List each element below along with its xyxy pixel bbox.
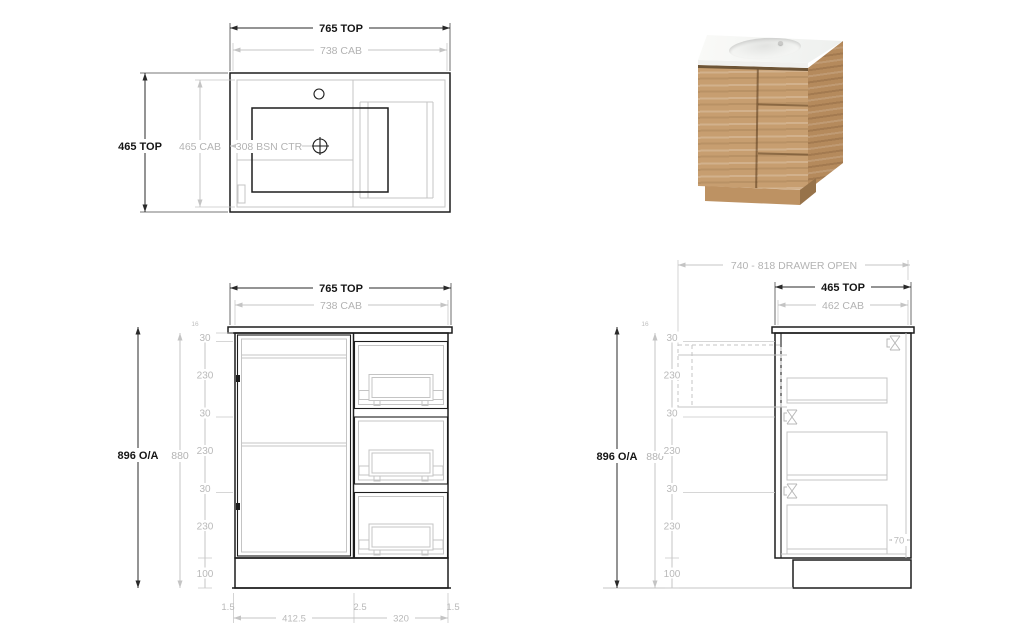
dim-front-height-overall: 896 O/A [116,327,161,588]
svg-text:30: 30 [199,409,211,420]
dim-label: 738 CAB [320,45,362,57]
svg-text:30: 30 [666,333,678,344]
svg-text:320: 320 [393,614,409,625]
open-drawer-outline [678,345,781,407]
svg-text:30: 30 [199,484,211,495]
svg-text:1.5: 1.5 [446,602,459,613]
dim-plan-width-cab: 738 CAB [233,43,447,71]
render-door-gap [755,68,759,189]
svg-text:230: 230 [197,522,214,533]
dim-label: 765 TOP [319,283,363,295]
dim-top-thickness: 16 [641,321,649,328]
kickboard [793,560,911,588]
side-elevation-view: 740 - 818 DRAWER OPEN 465 TOP 462 CAB [595,255,945,643]
svg-text:230: 230 [197,446,214,457]
dim-side-depth-cab: 462 CAB [778,298,908,325]
svg-text:1.5: 1.5 [221,602,234,613]
svg-text:230: 230 [664,522,681,533]
benchtop [772,327,914,333]
dim-back-gap: 70 [889,534,910,547]
dim-basin-centre: 308 BSN CTR [230,140,312,153]
dim-front-width-chain: 1.5 412.5 2.5 320 1.5 [221,593,459,625]
drawer-profile [787,505,887,554]
dim-side-height-chain: 30 230 30 230 30 230 100 [660,332,775,589]
dim-label: 740 - 818 DRAWER OPEN [731,260,857,272]
svg-text:100: 100 [197,569,214,580]
drawer-front [355,417,448,484]
dim-label: 465 TOP [118,141,162,153]
dim-plan-depth-cab: 465 CAB [175,80,235,207]
drawer-profile [787,432,887,480]
render-drawer-gap [758,152,808,155]
svg-text:230: 230 [664,446,681,457]
dim-label: 70 [894,536,905,547]
dim-front-width-cab: 738 CAB [235,298,448,325]
dim-label: 465 TOP [821,282,865,294]
dim-side-height-overall: 896 O/A [595,327,640,588]
drawing-sheet: 765 TOP 738 CAB 465 TOP 465 CAB [0,0,1013,643]
dim-label: 896 O/A [118,450,159,462]
dim-label: 308 BSN CTR [236,141,303,153]
hinge [236,503,240,510]
render-basin [728,36,801,62]
svg-text:2.5: 2.5 [353,602,366,613]
dim-label: 880 [171,450,189,462]
dim-front-height-chain: 30 230 30 230 30 230 100 [193,332,233,589]
drawer-profile [787,378,887,403]
product-render [685,20,880,225]
dim-label: 465 CAB [179,141,221,153]
front-geometry [228,327,452,588]
svg-text:30: 30 [666,409,678,420]
svg-text:230: 230 [197,371,214,382]
drawer-front [355,493,448,559]
runner-clip [887,336,900,350]
runner-clip [784,410,797,424]
svg-text:100: 100 [664,569,681,580]
benchtop [228,327,452,333]
dim-label: 738 CAB [320,300,362,312]
render-drawer-gap [758,103,808,106]
dim-front-height-cab: 880 [167,333,193,588]
svg-text:412.5: 412.5 [282,614,306,625]
dim-label: 765 TOP [319,23,363,35]
drawer-front [355,342,448,409]
dim-drawer-open: 740 - 818 DRAWER OPEN [678,258,910,345]
svg-text:230: 230 [664,371,681,382]
tap-hole [314,89,324,99]
render-tap-hole [778,41,783,45]
svg-text:30: 30 [666,484,678,495]
svg-text:30: 30 [199,333,211,344]
runner-clip [784,484,797,498]
dim-label: 896 O/A [597,451,638,463]
hinge [236,375,240,382]
front-elevation-view: 765 TOP 738 CAB [115,275,475,643]
cabinet-body [775,333,911,558]
dim-top-thickness: 16 [191,321,199,328]
kickboard [235,558,448,588]
dim-label: 462 CAB [822,300,864,312]
plan-view: 765 TOP 738 CAB 465 TOP 465 CAB [115,15,475,230]
